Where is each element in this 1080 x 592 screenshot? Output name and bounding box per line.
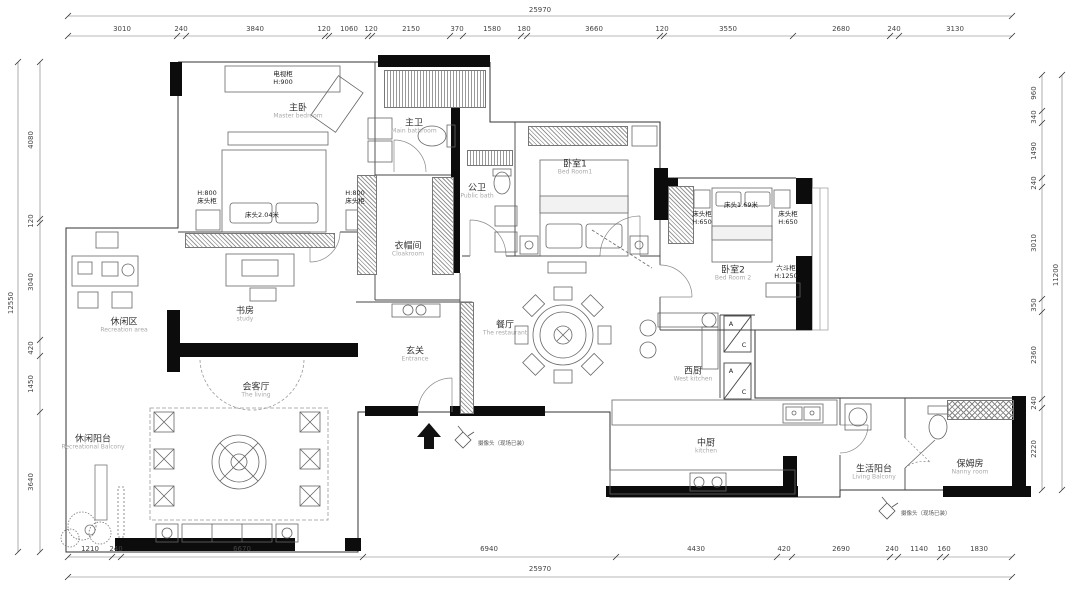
- floor-plan-drawing: [0, 0, 1080, 592]
- dim-left-0: 4080: [27, 131, 35, 149]
- entry-arrow: [417, 423, 441, 449]
- room-label-entrance: 玄关Entrance: [402, 346, 429, 363]
- room-label-master-bedroom: 主卧Master bedroom: [273, 103, 322, 120]
- dim-top-13: 2680: [832, 25, 850, 33]
- room-label-nanny-room: 保姆房Nanny room: [952, 459, 989, 476]
- dim-right-4: 3010: [1030, 234, 1038, 252]
- study-furniture: [226, 254, 294, 301]
- ac-label-2c: C: [742, 388, 747, 396]
- camera-note-entry: 摄像头（现场已装）: [478, 439, 528, 447]
- dim-top-7: 370: [450, 25, 463, 33]
- tv-cabinet-label: 电视柜H:900: [273, 70, 293, 86]
- dim-top-14: 240: [887, 25, 900, 33]
- dim-top-9: 180: [517, 25, 530, 33]
- cloakroom-wardrobe: [432, 177, 454, 275]
- dim-left-2: 3040: [27, 273, 35, 291]
- ac-label-1c: C: [742, 341, 747, 349]
- nightstand-label-left: H:800床头柜: [197, 189, 217, 205]
- service-area-furniture: [845, 404, 948, 468]
- dim-right-5: 350: [1030, 298, 1038, 311]
- room-label-living-balcony: 生活阳台Living Balcony: [852, 464, 896, 481]
- room-label-bedroom2: 卧室2Bed Room 2: [715, 265, 751, 282]
- room-label-study: 书房study: [236, 306, 254, 323]
- bedroom1-wardrobe: [528, 126, 628, 146]
- bedroom1-furniture: [520, 126, 657, 273]
- leisure-area-furniture: [72, 232, 138, 308]
- dim-top-15: 3130: [946, 25, 964, 33]
- dim-bottom-5: 420: [777, 545, 790, 553]
- dim-bottom-8: 1140: [910, 545, 928, 553]
- room-label-dining: 餐厅The restaurant: [483, 320, 527, 337]
- dim-top-6: 2150: [402, 25, 420, 33]
- dim-right-0: 960: [1030, 86, 1038, 99]
- nightstand-label-right: H:800床头柜: [345, 189, 365, 205]
- master-bedroom-furniture: [196, 66, 370, 232]
- dimension-ticks: [15, 13, 1065, 580]
- ac-label-1a: A: [729, 320, 733, 328]
- dim-left-4: 1450: [27, 375, 35, 393]
- dim-top-12: 3550: [719, 25, 737, 33]
- bed2-label: 床头1.69米: [724, 201, 758, 209]
- room-label-cloakroom: 衣帽间Cloakroom: [392, 241, 424, 258]
- dim-bottom-7: 240: [885, 545, 898, 553]
- dim-bottom-3: 6940: [480, 545, 498, 553]
- dim-bottom-4: 4430: [687, 545, 705, 553]
- entry-column: [460, 302, 474, 414]
- dim-bottom-1: 240: [109, 545, 122, 553]
- dimension-lines: [18, 16, 1062, 577]
- reception-furniture: [150, 360, 328, 542]
- dim-right-8: 2220: [1030, 440, 1038, 458]
- dim-top-10: 3660: [585, 25, 603, 33]
- west-kitchen-furniture: [640, 313, 718, 369]
- dim-left-3: 420: [27, 341, 35, 354]
- room-label-public-bath: 公卫Public bath: [460, 183, 493, 200]
- entrance-furniture: [392, 304, 440, 317]
- bedroom2-wardrobe: [668, 186, 694, 244]
- master-bed-label: 床头2.04米: [245, 211, 279, 219]
- six-drawer-label: 六斗柜H:1250: [774, 264, 798, 280]
- dim-bottom-6: 2690: [832, 545, 850, 553]
- dim-right-7: 240: [1030, 396, 1038, 409]
- room-label-leisure-balcony: 休闲阳台Recreational Balcony: [61, 434, 124, 451]
- dim-top-8: 1580: [483, 25, 501, 33]
- dim-top-11: 120: [655, 25, 668, 33]
- dim-bottom-overall: 25970: [529, 565, 551, 573]
- dim-right-1: 340: [1030, 110, 1038, 123]
- dim-top-0: 3010: [113, 25, 131, 33]
- dim-right-overall: 11200: [1052, 264, 1060, 286]
- main-kitchen-furniture: [610, 400, 837, 494]
- room-label-west-kitchen: 西厨West kitchen: [674, 366, 713, 383]
- dim-top-5: 120: [364, 25, 377, 33]
- public-bath-window: [467, 150, 513, 166]
- dim-left-1: 120: [27, 214, 35, 227]
- dining-furniture: [515, 287, 611, 383]
- dim-top-1: 240: [174, 25, 187, 33]
- floor-plan: 主卧Master bedroom 主卫Main bathroom 衣帽间Cloa…: [0, 0, 1080, 592]
- dim-top-3: 120: [317, 25, 330, 33]
- dim-bottom-9: 160: [937, 545, 950, 553]
- room-label-leisure-area: 休闲区Recreation area: [100, 317, 147, 334]
- dim-right-2: 1490: [1030, 142, 1038, 160]
- camera-note-balcony: 摄像头（现场已装）: [901, 509, 951, 517]
- dim-right-6: 2360: [1030, 346, 1038, 364]
- dim-top-2: 3840: [246, 25, 264, 33]
- study-bookshelf: [185, 233, 335, 248]
- room-label-master-bath: 主卫Main bathroom: [391, 118, 436, 135]
- nightstand2-label-left: 床头柜H:650: [692, 210, 712, 226]
- ac-shaft-boxes: [724, 316, 751, 399]
- leisure-balcony-furniture: [61, 465, 124, 547]
- dim-left-5: 3640: [27, 473, 35, 491]
- dim-bottom-2: 6670: [233, 545, 251, 553]
- dim-top-4: 1060: [340, 25, 358, 33]
- room-label-main-kitchen: 中厨kitchen: [695, 438, 717, 455]
- dim-right-3: 240: [1030, 176, 1038, 189]
- service-cabinet-hatch: [947, 400, 1014, 420]
- dim-bottom-10: 1830: [970, 545, 988, 553]
- dim-left-overall: 12550: [7, 292, 15, 314]
- bay-window-hatch: [384, 70, 486, 108]
- room-label-bedroom1: 卧室1Bed Room1: [558, 159, 592, 176]
- room-label-reception: 会客厅The living: [241, 382, 270, 399]
- dim-top-overall: 25970: [529, 6, 551, 14]
- nightstand2-label-right: 床头柜H:650: [778, 210, 798, 226]
- dim-bottom-0: 1210: [81, 545, 99, 553]
- ac-label-2a: A: [729, 367, 733, 375]
